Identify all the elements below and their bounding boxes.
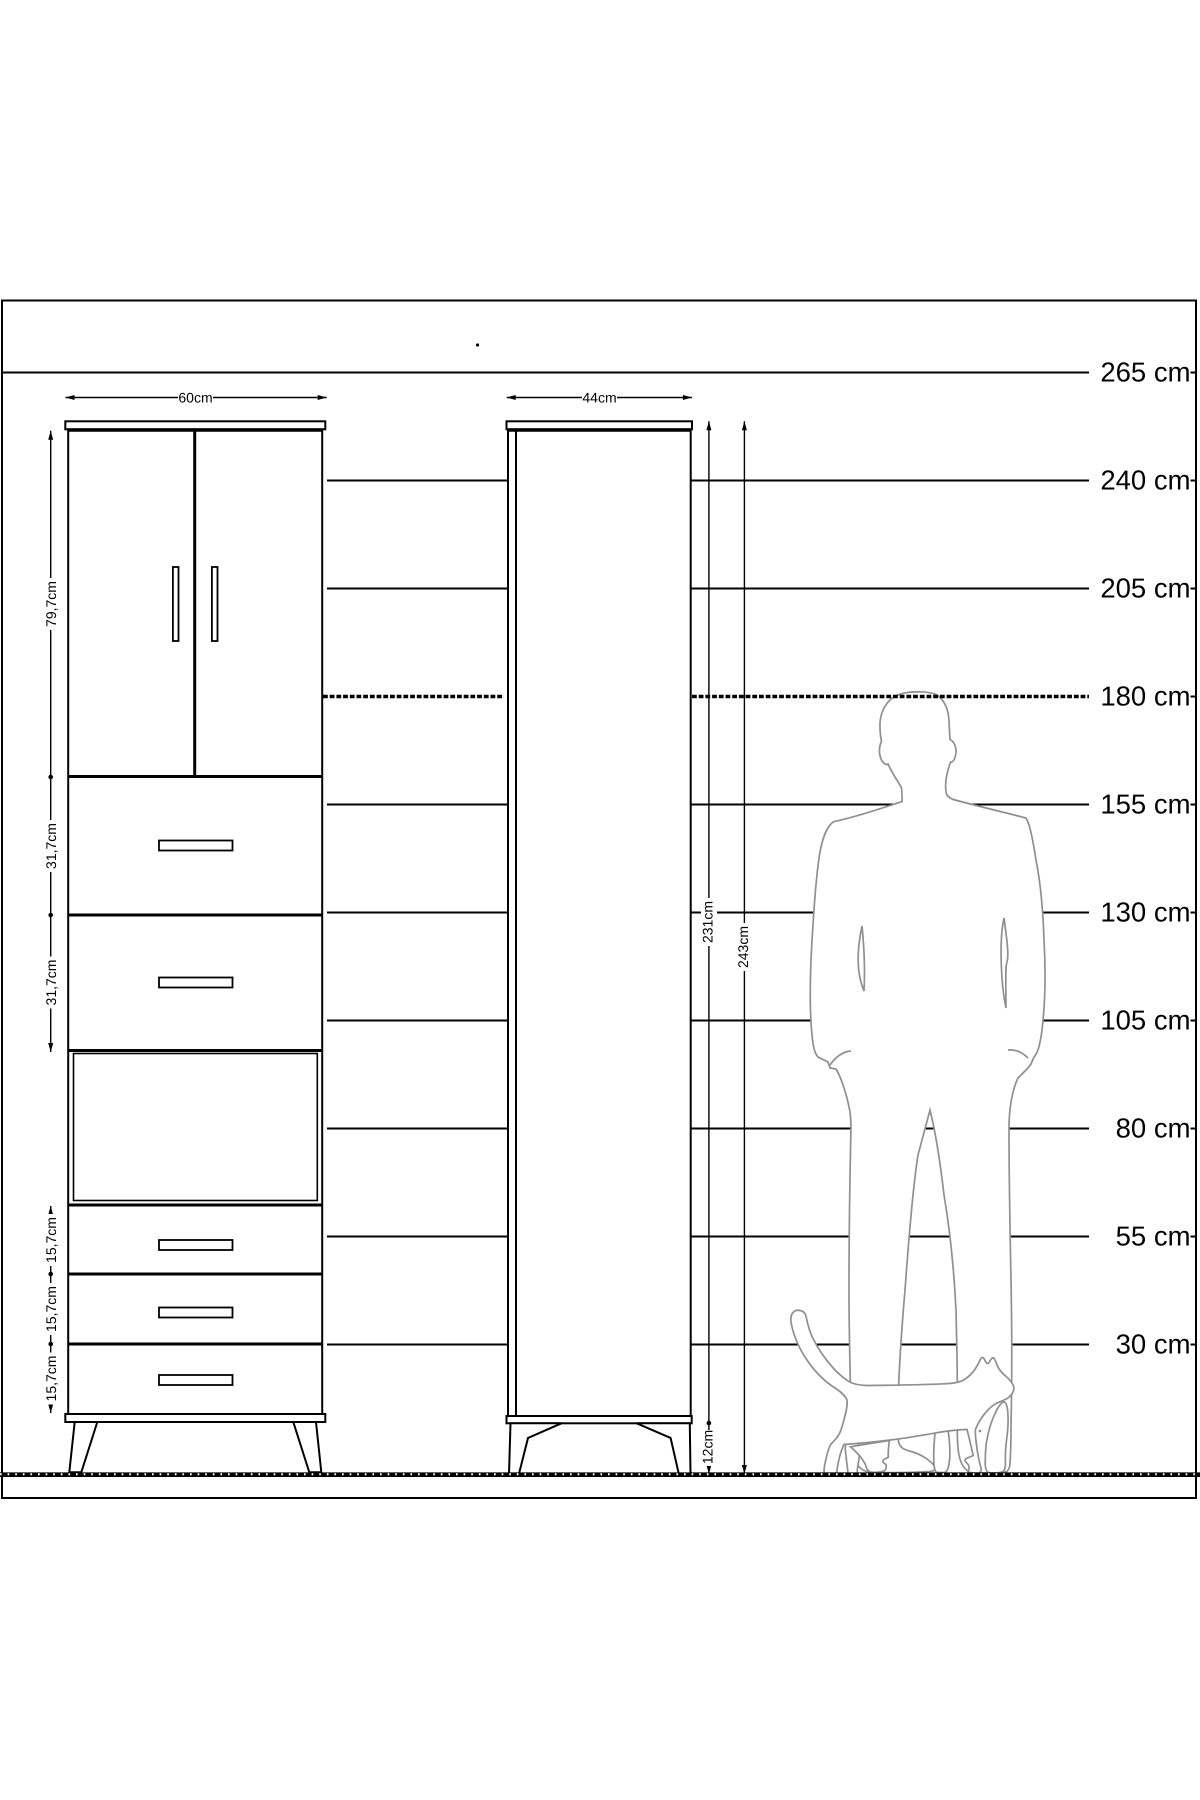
svg-text:15,7cm: 15,7cm (43, 1356, 59, 1402)
svg-text:15,7cm: 15,7cm (43, 1217, 59, 1263)
svg-text:30 cm: 30 cm (1116, 1329, 1191, 1360)
svg-text:205 cm: 205 cm (1100, 573, 1190, 604)
svg-text:155 cm: 155 cm (1100, 789, 1190, 820)
svg-text:80 cm: 80 cm (1116, 1113, 1191, 1144)
svg-text:31,7cm: 31,7cm (43, 823, 59, 869)
svg-text:265 cm: 265 cm (1100, 357, 1190, 388)
svg-text:31,7cm: 31,7cm (43, 960, 59, 1006)
svg-text:79,7cm: 79,7cm (43, 581, 59, 627)
svg-text:130 cm: 130 cm (1100, 897, 1190, 928)
svg-text:44cm: 44cm (582, 390, 616, 406)
svg-text:60cm: 60cm (178, 390, 212, 406)
svg-text:15,7cm: 15,7cm (43, 1286, 59, 1332)
svg-text:12cm: 12cm (700, 1430, 716, 1464)
svg-text:55 cm: 55 cm (1116, 1221, 1191, 1252)
svg-text:180 cm: 180 cm (1100, 681, 1190, 712)
svg-text:243cm: 243cm (735, 926, 751, 968)
svg-text:240 cm: 240 cm (1100, 465, 1190, 496)
svg-text:105 cm: 105 cm (1100, 1005, 1190, 1036)
svg-text:231cm: 231cm (700, 901, 716, 943)
